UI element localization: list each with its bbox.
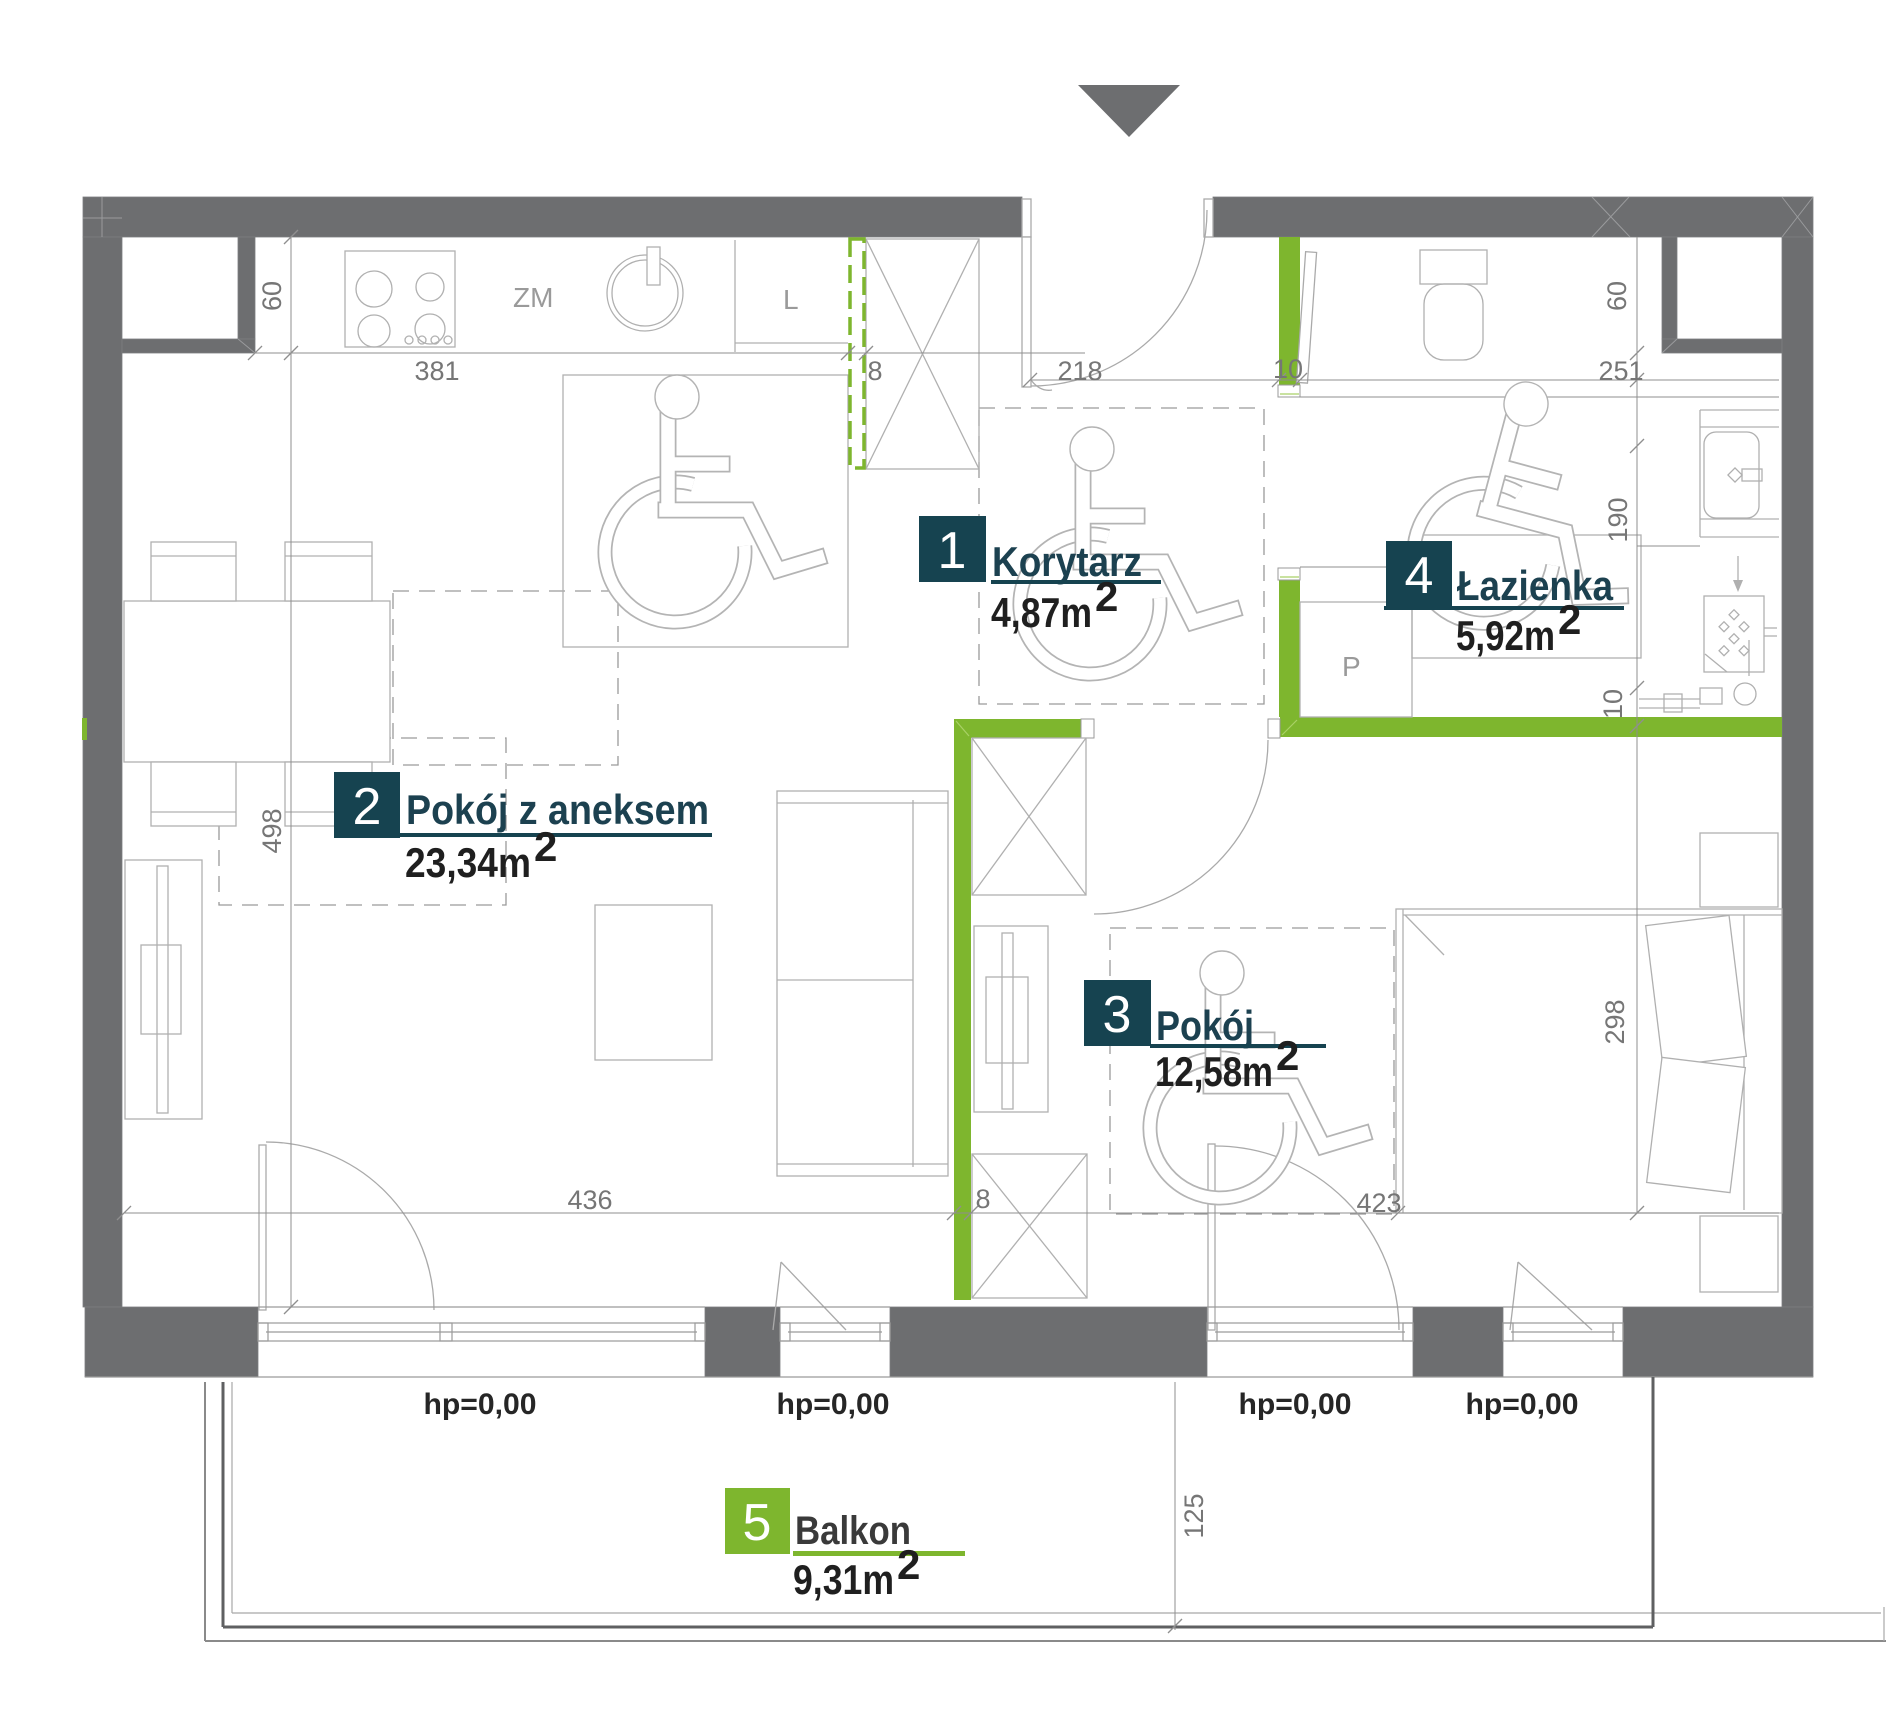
svg-text:12,58m: 12,58m bbox=[1155, 1048, 1273, 1095]
svg-text:2: 2 bbox=[1558, 596, 1581, 643]
svg-text:hp=0,00: hp=0,00 bbox=[424, 1388, 537, 1421]
svg-text:423: 423 bbox=[1356, 1188, 1401, 1218]
svg-text:251: 251 bbox=[1598, 356, 1643, 386]
svg-text:218: 218 bbox=[1057, 356, 1102, 386]
svg-text:381: 381 bbox=[414, 356, 459, 386]
svg-text:2: 2 bbox=[1095, 573, 1118, 620]
svg-text:hp=0,00: hp=0,00 bbox=[777, 1388, 890, 1421]
svg-text:hp=0,00: hp=0,00 bbox=[1239, 1388, 1352, 1421]
svg-text:5,92m: 5,92m bbox=[1456, 612, 1555, 659]
svg-text:125: 125 bbox=[1179, 1493, 1209, 1538]
svg-text:4: 4 bbox=[1405, 547, 1434, 605]
svg-text:23,34m: 23,34m bbox=[405, 839, 531, 886]
svg-text:298: 298 bbox=[1600, 999, 1630, 1044]
svg-text:60: 60 bbox=[257, 281, 287, 311]
svg-text:10: 10 bbox=[1273, 354, 1303, 384]
svg-text:190: 190 bbox=[1603, 497, 1633, 542]
svg-text:498: 498 bbox=[257, 808, 287, 853]
svg-text:8: 8 bbox=[975, 1184, 990, 1214]
svg-text:L: L bbox=[783, 284, 799, 315]
svg-text:60: 60 bbox=[1602, 281, 1632, 311]
svg-text:9,31m: 9,31m bbox=[793, 1556, 894, 1603]
svg-text:1: 1 bbox=[938, 522, 967, 580]
svg-text:8: 8 bbox=[867, 356, 882, 386]
svg-text:2: 2 bbox=[1276, 1032, 1299, 1079]
svg-text:Korytarz: Korytarz bbox=[992, 538, 1142, 585]
svg-text:Pokój z aneksem: Pokój z aneksem bbox=[406, 786, 709, 833]
svg-text:5: 5 bbox=[743, 1494, 772, 1552]
svg-text:436: 436 bbox=[567, 1185, 612, 1215]
svg-text:2: 2 bbox=[897, 1541, 920, 1588]
svg-text:Pokój: Pokój bbox=[1156, 1002, 1254, 1049]
svg-text:P: P bbox=[1342, 651, 1361, 682]
svg-text:Balkon: Balkon bbox=[795, 1509, 911, 1553]
svg-text:ZM: ZM bbox=[513, 282, 553, 313]
svg-text:hp=0,00: hp=0,00 bbox=[1466, 1388, 1579, 1421]
svg-text:4,87m: 4,87m bbox=[991, 589, 1092, 636]
svg-text:2: 2 bbox=[353, 778, 382, 836]
svg-text:2: 2 bbox=[534, 823, 557, 870]
svg-text:10: 10 bbox=[1598, 689, 1628, 719]
svg-text:Łazienka: Łazienka bbox=[1457, 562, 1614, 609]
svg-text:3: 3 bbox=[1103, 986, 1132, 1044]
